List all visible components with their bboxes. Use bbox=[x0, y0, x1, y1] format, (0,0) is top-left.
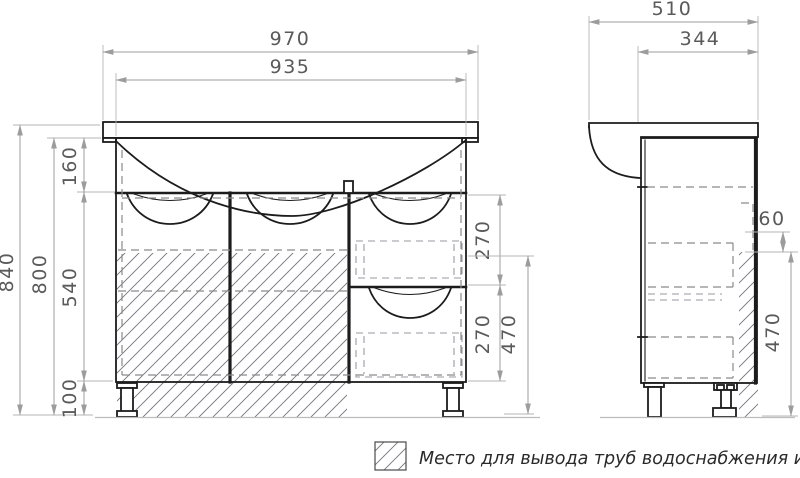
front-right-leg bbox=[443, 383, 463, 417]
dim-basin-width: 935 bbox=[270, 56, 311, 78]
dim-door-height: 540 bbox=[59, 267, 81, 308]
dim-pipe-gap: 60 bbox=[758, 208, 785, 230]
front-view bbox=[95, 122, 540, 418]
legend-text: Место для вывода труб водоснабжения и ка… bbox=[419, 449, 800, 469]
dim-leg-height: 100 bbox=[59, 378, 81, 419]
dim-apron-height: 160 bbox=[59, 146, 81, 187]
side-rear-adjustable-foot bbox=[713, 383, 737, 417]
side-view bbox=[589, 123, 795, 418]
dim-cabinet-height: 800 bbox=[29, 254, 51, 295]
dim-cabinet-depth: 344 bbox=[680, 28, 721, 50]
dim-overall-width: 970 bbox=[270, 28, 311, 50]
dim-overall-height: 840 bbox=[0, 252, 18, 293]
dim-drawer-lower: 270 bbox=[472, 314, 494, 355]
technical-drawing-page: 970 935 840 800 160 540 100 270 270 bbox=[0, 0, 800, 478]
dim-pipe-zone-front: 470 bbox=[498, 314, 520, 355]
side-top-fill bbox=[589, 123, 758, 137]
vanity-cabinet-drawing: 970 935 840 800 160 540 100 270 270 bbox=[0, 0, 800, 478]
sink-top-fill bbox=[103, 122, 478, 138]
pipe-zone-hatch-front bbox=[117, 253, 347, 417]
dim-pipe-zone-side: 470 bbox=[762, 312, 784, 353]
dim-drawer-upper: 270 bbox=[472, 220, 494, 261]
sink-top-left-tab bbox=[103, 138, 116, 142]
divider-top-clip bbox=[344, 181, 353, 193]
hatch-swatch-icon bbox=[375, 442, 406, 470]
legend: Место для вывода труб водоснабжения и ка… bbox=[375, 442, 800, 470]
dim-overall-depth: 510 bbox=[652, 0, 693, 20]
side-front-leg bbox=[644, 383, 664, 417]
